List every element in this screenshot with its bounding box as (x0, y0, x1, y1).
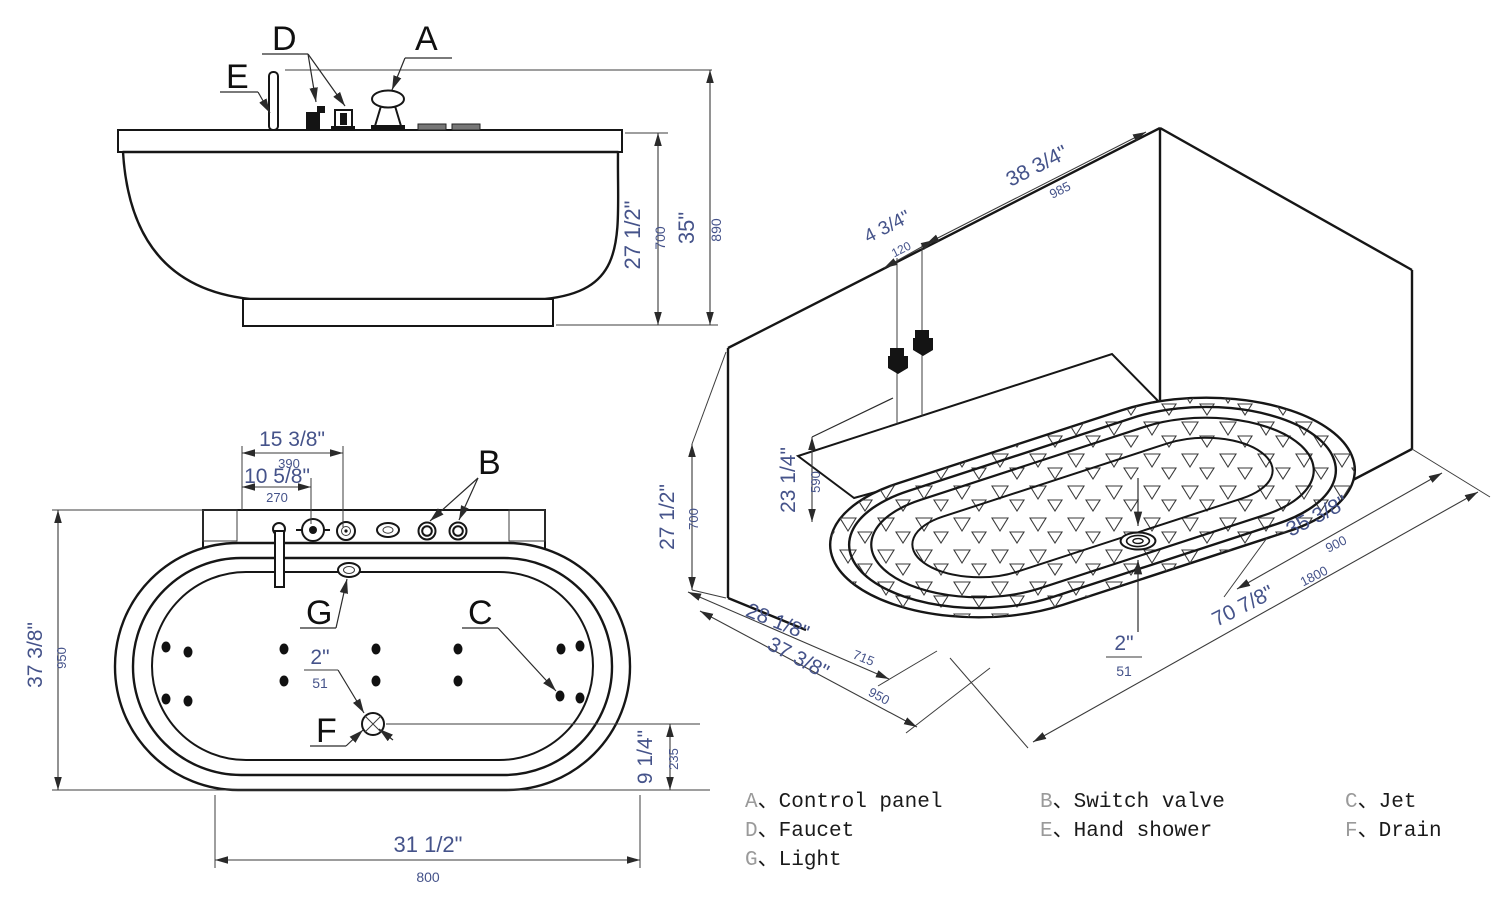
legend-item-a: A、Control panel (745, 784, 1040, 813)
switch-valve-icon (419, 523, 436, 540)
hand-shower-rod-icon (275, 531, 284, 587)
dim-iso-51-mm: 51 (1116, 663, 1132, 679)
tub-outer-rim (115, 543, 630, 790)
faucet-iso-icon (913, 330, 933, 356)
deck-fixtures-front (269, 72, 480, 131)
front-callouts: D A E (220, 20, 452, 113)
tub-rim-front (118, 130, 622, 152)
dim-iso-1800-mm: 1800 (1298, 563, 1331, 589)
legend-label: Hand shower (1074, 820, 1213, 843)
legend-item-d: D、Faucet (745, 813, 1040, 842)
dim-plan-950-in: 37 3/8" (24, 622, 47, 688)
legend-key: D (745, 820, 758, 843)
legend-key: B (1040, 791, 1053, 814)
legend-label: Jet (1379, 791, 1417, 814)
dim-front-height-mm: 700 (652, 226, 668, 250)
callout-d: D (272, 20, 297, 58)
dim-front-total-height-in: 35" (674, 212, 699, 244)
dim-iso-590-in: 23 1/4" (777, 447, 800, 513)
dim-plan-950-mm: 950 (54, 647, 69, 669)
legend-separator: 、 (1053, 820, 1074, 843)
legend-item-b: B、Switch valve (1040, 784, 1345, 813)
dim-iso-900-mm: 900 (1323, 532, 1349, 555)
dim-front-total-height-mm: 890 (708, 218, 724, 242)
legend-separator: 、 (758, 791, 779, 814)
left-wall-top-edge (728, 128, 1160, 348)
legend-item-c: C、Jet (1345, 784, 1442, 813)
callout-e: E (226, 58, 249, 96)
tub-bowl-front (123, 152, 618, 299)
drawing-svg: D A E 27 1/2" 700 35" 890 (0, 0, 1500, 900)
control-panel-icon (371, 91, 405, 131)
legend-key: A (745, 791, 758, 814)
legend-label: Control panel (779, 791, 943, 814)
legend-label: Light (779, 849, 842, 872)
legend-label: Switch valve (1074, 791, 1225, 814)
dim-iso-950-mm: 950 (866, 684, 892, 707)
legend-item-f: F、Drain (1345, 813, 1442, 842)
isometric-view: 38 3/4" 985 4 3/4" 120 23 1/4" 590 27 1/… (656, 128, 1490, 748)
legend-label: Faucet (779, 820, 855, 843)
legend-separator: 、 (1053, 791, 1074, 814)
plan-tub-outlines (115, 543, 630, 790)
callout-f: F (316, 712, 337, 750)
tub-plinth-front (243, 299, 553, 326)
dim-plan-51-mm: 51 (312, 675, 328, 691)
callout-g: G (306, 594, 332, 632)
callout-b: B (478, 444, 501, 482)
round-control-icon (337, 522, 355, 540)
legend-separator: 、 (1358, 791, 1379, 814)
dim-plan-270-in: 10 5/8" (244, 465, 310, 488)
dim-iso-985-mm: 985 (1047, 178, 1073, 201)
dim-plan-235-mm: 235 (666, 748, 681, 770)
dim-iso-700-mm: 700 (686, 508, 701, 530)
technical-drawing-canvas: D A E 27 1/2" 700 35" 890 (0, 0, 1500, 900)
dim-plan-800-mm: 800 (416, 869, 440, 885)
tub-front-outline (118, 130, 622, 326)
legend-key: F (1345, 820, 1358, 843)
legend-item-g: G、Light (745, 842, 1040, 871)
dim-front-height-in: 27 1/2" (620, 201, 645, 270)
right-wall-top-edge (1160, 128, 1412, 270)
dim-iso-700-in: 27 1/2" (656, 484, 679, 550)
dim-plan-270-mm: 270 (266, 490, 288, 505)
dim-plan-390-in: 15 3/8" (259, 428, 325, 451)
legend-label: Drain (1379, 820, 1442, 843)
dim-plan-800-in: 31 1/2" (394, 832, 463, 857)
switch-valve-icon (450, 523, 467, 540)
hand-shower-icon (269, 72, 278, 130)
hand-shower-iso-icon (888, 348, 908, 374)
plan-view: B G C F 15 3/8" 390 10 5/8" 27 (24, 428, 710, 885)
legend-separator: 、 (1358, 820, 1379, 843)
legend-item-e: E、Hand shower (1040, 813, 1345, 842)
dim-iso-715-mm: 715 (851, 647, 877, 669)
legend-key: E (1040, 820, 1053, 843)
legend-key: G (745, 849, 758, 872)
control-panel-plan-icon (377, 523, 399, 537)
legend: A、Control panel B、Switch valve C、Jet D、F… (745, 784, 1442, 871)
drain-plan-icon (362, 713, 384, 735)
dim-plan-235-in: 9 1/4" (634, 730, 657, 784)
dim-iso-590-mm: 590 (808, 471, 823, 493)
dim-iso-120-mm: 120 (889, 239, 913, 261)
legend-key: C (1345, 791, 1358, 814)
legend-separator: 、 (758, 820, 779, 843)
legend-separator: 、 (758, 849, 779, 872)
faucet-icon (306, 106, 325, 130)
callout-a: A (415, 20, 438, 58)
front-elevation-view: D A E 27 1/2" 700 35" 890 (118, 20, 724, 326)
dim-plan-51-in: 2" (310, 646, 329, 669)
deck-pad-icon (452, 124, 480, 130)
dim-iso-51-in: 2" (1114, 632, 1133, 655)
diverter-icon (331, 110, 355, 131)
deck-pad-icon (418, 124, 446, 130)
front-dimensions: 27 1/2" 700 35" 890 (620, 70, 724, 325)
callout-c: C (468, 594, 493, 632)
iso-wall-fixtures (888, 243, 933, 424)
light-icon (338, 563, 360, 577)
